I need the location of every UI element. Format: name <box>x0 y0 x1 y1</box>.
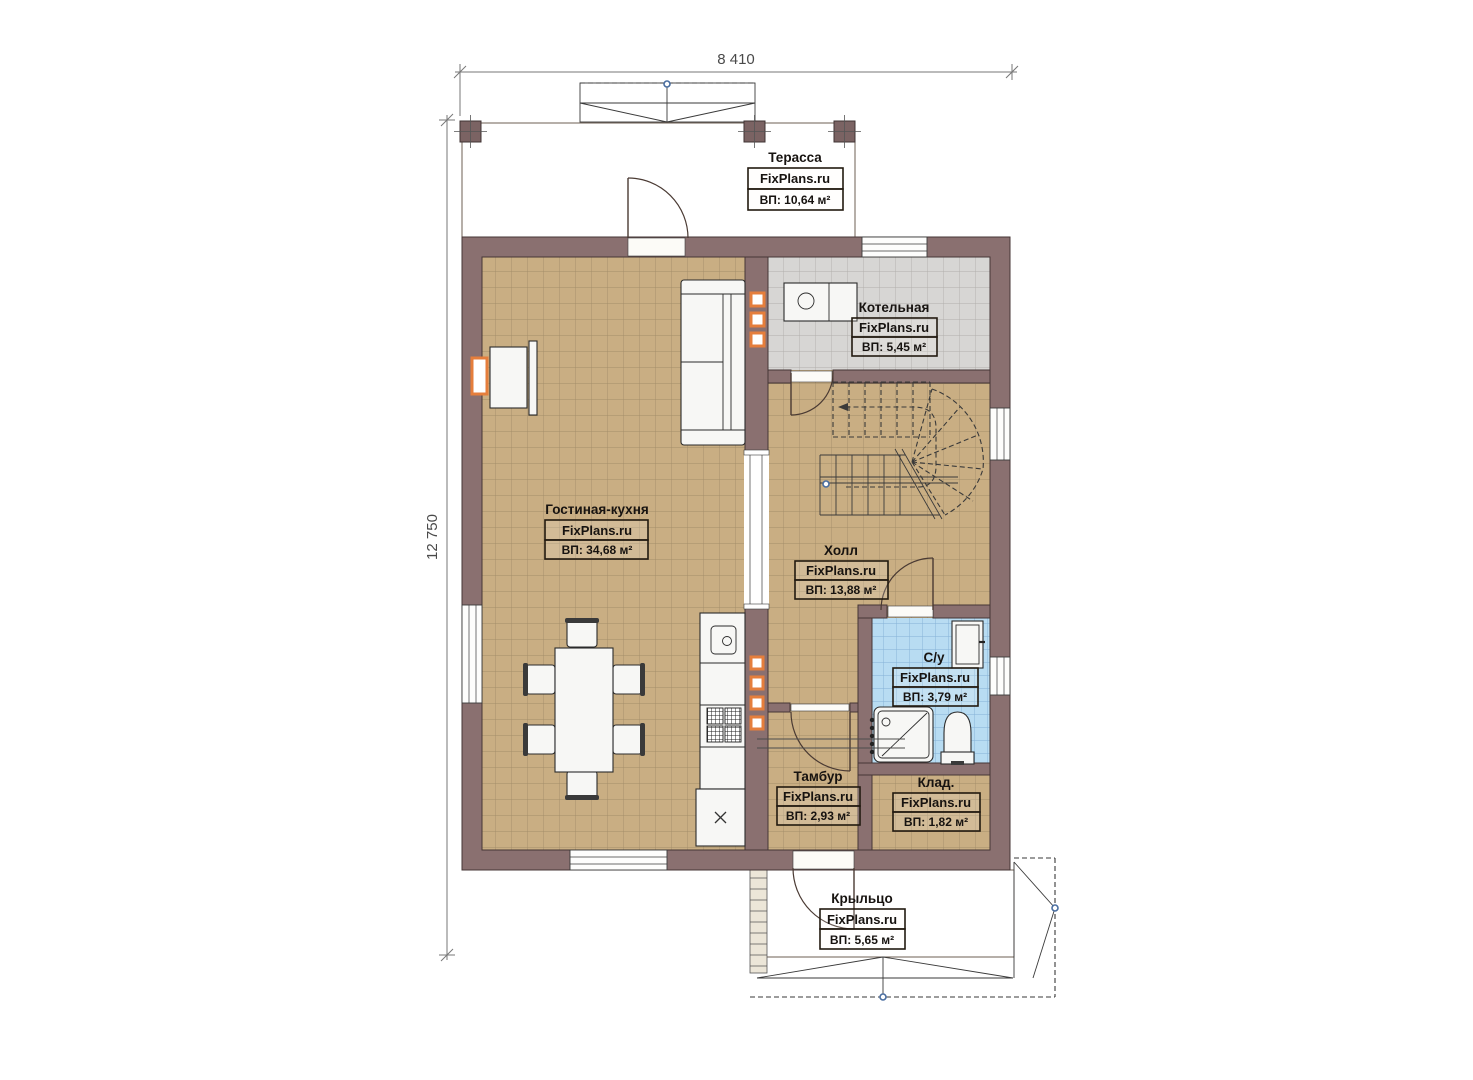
marker-dot <box>664 81 670 87</box>
flue-icon <box>751 293 764 306</box>
watermark: FixPlans.ru <box>901 795 971 810</box>
watermark: FixPlans.ru <box>760 171 830 186</box>
floor-plan-canvas: 8 410 12 750 Терасса FixPlans.ru ВП: 10,… <box>0 0 1473 1080</box>
chair <box>613 665 642 694</box>
room-name: Терасса <box>768 150 822 165</box>
room-name: Гостиная-кухня <box>545 502 648 517</box>
sofa <box>681 280 745 445</box>
chair <box>567 771 597 798</box>
chair <box>567 620 597 647</box>
water-heater-cabinet <box>952 621 985 668</box>
room-name: Клад. <box>918 775 955 790</box>
opening-living-hall <box>744 450 769 609</box>
watermark: FixPlans.ru <box>859 320 929 335</box>
flue-icon <box>751 313 764 326</box>
room-label-porch: Крыльцо FixPlans.ru ВП: 5,65 м² <box>820 891 905 949</box>
dimension-width-label: 8 410 <box>717 51 755 68</box>
flue-icon <box>751 657 763 669</box>
chair <box>526 725 555 754</box>
shower-tray <box>870 707 933 762</box>
boiler-equipment <box>784 283 857 321</box>
partition-boiler-stub <box>768 370 791 383</box>
toilet <box>941 712 974 765</box>
chair <box>526 665 555 694</box>
watermark: FixPlans.ru <box>827 912 897 927</box>
marker-dot <box>880 994 886 1000</box>
fireplace-flue <box>472 358 487 394</box>
dimension-height-label: 12 750 <box>424 514 441 560</box>
window-living-bottom <box>570 850 667 870</box>
window-boiler-top <box>862 237 927 257</box>
room-area: ВП: 5,45 м² <box>862 340 926 354</box>
room-area: ВП: 10,64 м² <box>760 193 831 207</box>
marker-dot <box>1052 905 1058 911</box>
room-label-terrace: Терасса FixPlans.ru ВП: 10,64 м² <box>748 150 843 210</box>
watermark: FixPlans.ru <box>900 670 970 685</box>
tv-unit <box>490 341 537 415</box>
room-area: ВП: 34,68 м² <box>562 543 633 557</box>
chair <box>613 725 642 754</box>
room-area: ВП: 2,93 м² <box>786 809 850 823</box>
porch-side-steps <box>750 856 767 973</box>
flue-icon <box>751 717 763 729</box>
partition-living-boiler <box>745 257 768 453</box>
room-name: Тамбур <box>794 769 843 784</box>
watermark: FixPlans.ru <box>562 523 632 538</box>
door-terrace <box>628 178 688 256</box>
partition-boiler-hall <box>833 370 990 383</box>
terrace-steps <box>580 81 755 122</box>
room-area: ВП: 5,65 м² <box>830 933 894 947</box>
partition-bathroom-top-left <box>858 605 887 618</box>
dimension-left: 12 750 <box>424 114 455 961</box>
floor-plan-page: 8 410 12 750 Терасса FixPlans.ru ВП: 10,… <box>0 0 1473 1080</box>
window-bathroom-right <box>990 657 1010 695</box>
room-area: ВП: 1,82 м² <box>904 815 968 829</box>
kitchen-counter <box>696 613 745 846</box>
partition-bathroom-top-right <box>933 605 990 618</box>
flue-icon <box>751 333 764 346</box>
room-area: ВП: 3,79 м² <box>903 690 967 704</box>
room-name: С/у <box>923 650 945 665</box>
marker-dot <box>823 481 829 487</box>
flue-icon <box>751 677 763 689</box>
window-stairs-right <box>990 408 1010 460</box>
room-name: Холл <box>824 543 858 558</box>
partition-bathroom-bottom <box>858 763 990 775</box>
watermark: FixPlans.ru <box>783 789 853 804</box>
room-label-living-kitchen: Гостиная-кухня FixPlans.ru ВП: 34,68 м² <box>545 502 649 559</box>
flue-icon <box>751 697 763 709</box>
partition-hall-vestibule-left <box>768 703 790 712</box>
room-name: Крыльцо <box>831 891 892 906</box>
room-name: Котельная <box>859 300 930 315</box>
window-living-left <box>462 605 482 703</box>
dining-table <box>555 648 613 772</box>
room-label-boiler: Котельная FixPlans.ru ВП: 5,45 м² <box>852 300 937 356</box>
watermark: FixPlans.ru <box>806 563 876 578</box>
room-area: ВП: 13,88 м² <box>806 583 877 597</box>
